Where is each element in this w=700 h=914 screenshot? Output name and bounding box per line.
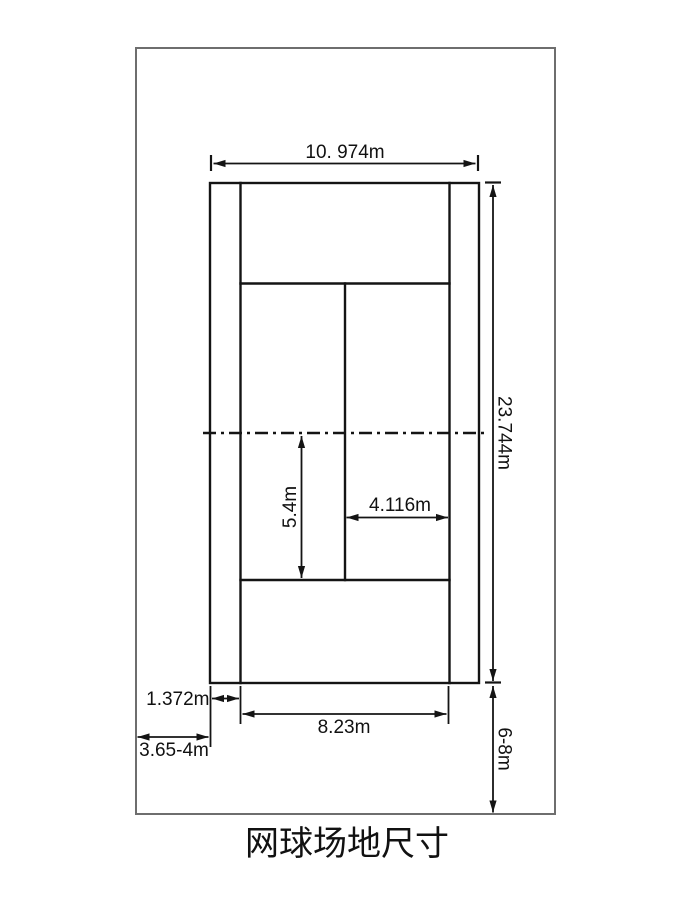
service-depth-label: 5.4m (280, 486, 301, 528)
alley-width-label: 1.372m (146, 689, 209, 710)
service-box-width-label: 4.116m (369, 495, 431, 516)
side-clearance-label: 3.65-4m (139, 740, 209, 761)
end-clearance-label: 6-8m (494, 727, 515, 770)
dimension-labels: 10. 974m 23.744m 5.4m 4.116m 1.372m 8.23… (139, 142, 514, 863)
diagram-title: 网球场地尺寸 (245, 825, 449, 863)
tennis-court-diagram: 10. 974m 23.744m 5.4m 4.116m 1.372m 8.23… (0, 0, 700, 914)
singles-width-label: 8.23m (318, 717, 371, 738)
overall-length-label: 23.744m (494, 396, 515, 470)
overall-width-label: 10. 974m (305, 142, 384, 163)
court-lines (203, 183, 486, 683)
dimension-annotations (138, 155, 502, 813)
diagram-canvas: 10. 974m 23.744m 5.4m 4.116m 1.372m 8.23… (0, 0, 700, 914)
